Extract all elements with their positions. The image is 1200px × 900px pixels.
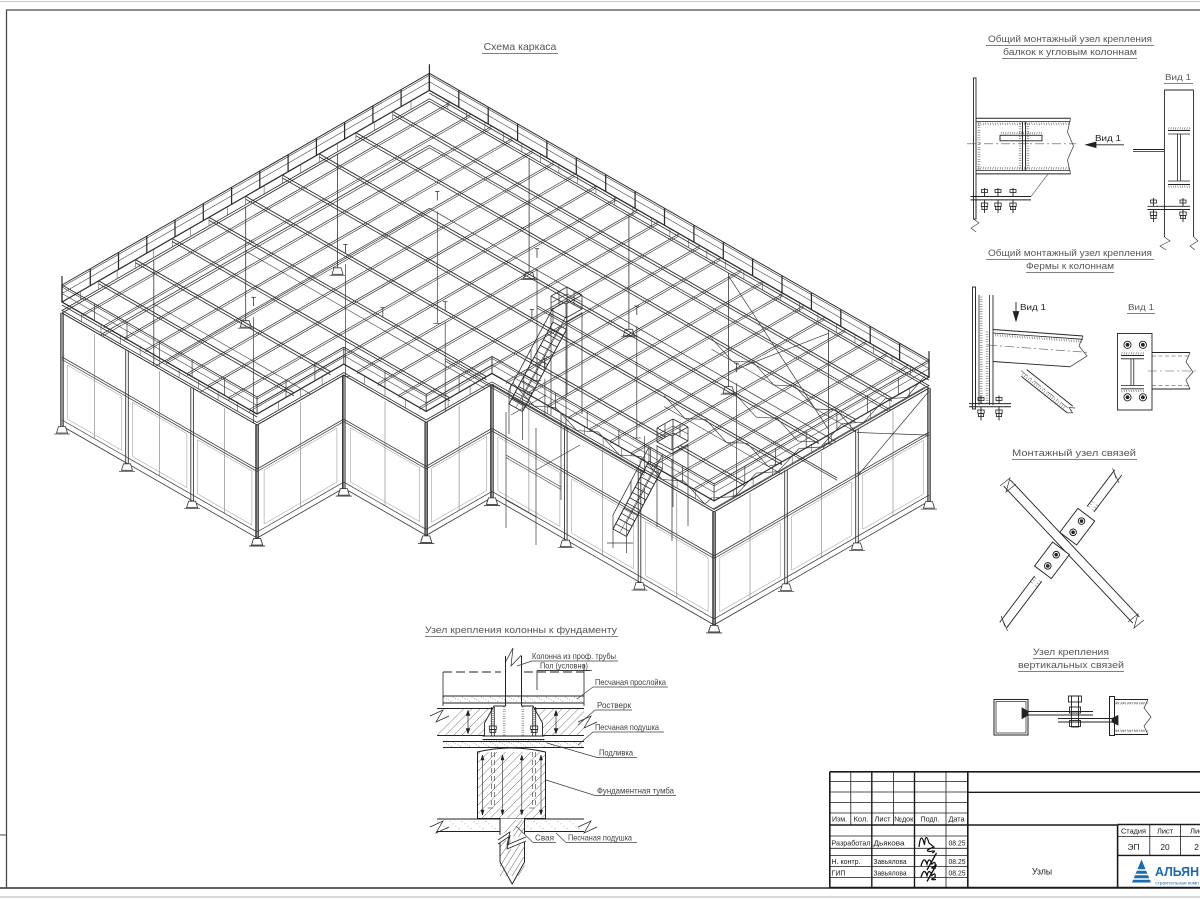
svg-text:ГИП: ГИП	[832, 869, 846, 878]
svg-text:Монтажный узел связей: Монтажный узел связей	[1012, 448, 1136, 458]
svg-text:08.25: 08.25	[949, 857, 966, 866]
svg-text:ЭП: ЭП	[1128, 842, 1140, 852]
svg-text:Изм.: Изм.	[832, 815, 847, 824]
svg-text:Н. контр.: Н. контр.	[832, 857, 861, 866]
svg-text:Вид 1: Вид 1	[1165, 72, 1191, 82]
svg-text:Лист: Лист	[875, 815, 892, 824]
svg-text:Подливка: Подливка	[599, 748, 633, 758]
svg-text:строительная комп: строительная комп	[1155, 881, 1200, 886]
svg-text:Общий монтажный узел крепления: Общий монтажный узел крепления	[988, 248, 1152, 258]
svg-text:№док: №док	[894, 815, 914, 824]
svg-text:Завьялова: Завьялова	[874, 857, 908, 866]
svg-text:08.25: 08.25	[949, 839, 966, 848]
svg-text:Песчаная подушка: Песчаная подушка	[595, 722, 659, 732]
svg-text:Вид 1: Вид 1	[1020, 302, 1046, 312]
svg-text:Кол.: Кол.	[854, 815, 869, 824]
svg-text:Дата: Дата	[949, 815, 966, 824]
svg-text:Узел крепления: Узел крепления	[1033, 647, 1109, 657]
svg-text:Колонна из проф. трубы: Колонна из проф. трубы	[532, 651, 616, 661]
svg-text:Ростверк: Ростверк	[597, 700, 631, 710]
svg-text:Завьялова: Завьялова	[874, 869, 908, 878]
svg-text:балкок к угловым колоннам: балкок к угловым колоннам	[1003, 47, 1137, 57]
svg-text:Лис: Лис	[1190, 827, 1200, 836]
svg-text:Вид 1: Вид 1	[1128, 302, 1154, 312]
svg-text:2: 2	[1194, 842, 1199, 852]
svg-text:Фундаментная тумба: Фундаментная тумба	[597, 786, 674, 796]
svg-text:Подп.: Подп.	[921, 815, 940, 824]
svg-text:Разработал: Разработал	[832, 839, 871, 848]
svg-text:Лист: Лист	[1157, 827, 1174, 836]
svg-text:Схема каркаса: Схема каркаса	[484, 41, 557, 53]
svg-text:Пол (условно): Пол (условно)	[540, 661, 588, 671]
svg-text:08.25: 08.25	[949, 869, 966, 878]
svg-text:Свая: Свая	[535, 833, 554, 843]
svg-text:Общий монтажный узел крепления: Общий монтажный узел крепления	[988, 34, 1152, 44]
svg-text:Узел крепления колонны к фунда: Узел крепления колонны к фундаменту	[425, 625, 617, 636]
svg-text:Песчаная прослойка: Песчаная прослойка	[595, 677, 666, 687]
svg-text:Дьякова: Дьякова	[874, 839, 906, 848]
svg-text:Вид 1: Вид 1	[1095, 133, 1121, 143]
svg-text:Фермы к колоннам: Фермы к колоннам	[1026, 261, 1114, 271]
svg-text:Стадия: Стадия	[1121, 827, 1146, 836]
svg-text:20: 20	[1160, 842, 1170, 852]
svg-text:Песчаная подушка: Песчаная подушка	[568, 833, 632, 843]
svg-text:АЛЬЯН: АЛЬЯН	[1155, 864, 1199, 879]
svg-text:вертикальных связей: вертикальных связей	[1018, 660, 1124, 670]
svg-text:Узлы: Узлы	[1032, 867, 1052, 877]
